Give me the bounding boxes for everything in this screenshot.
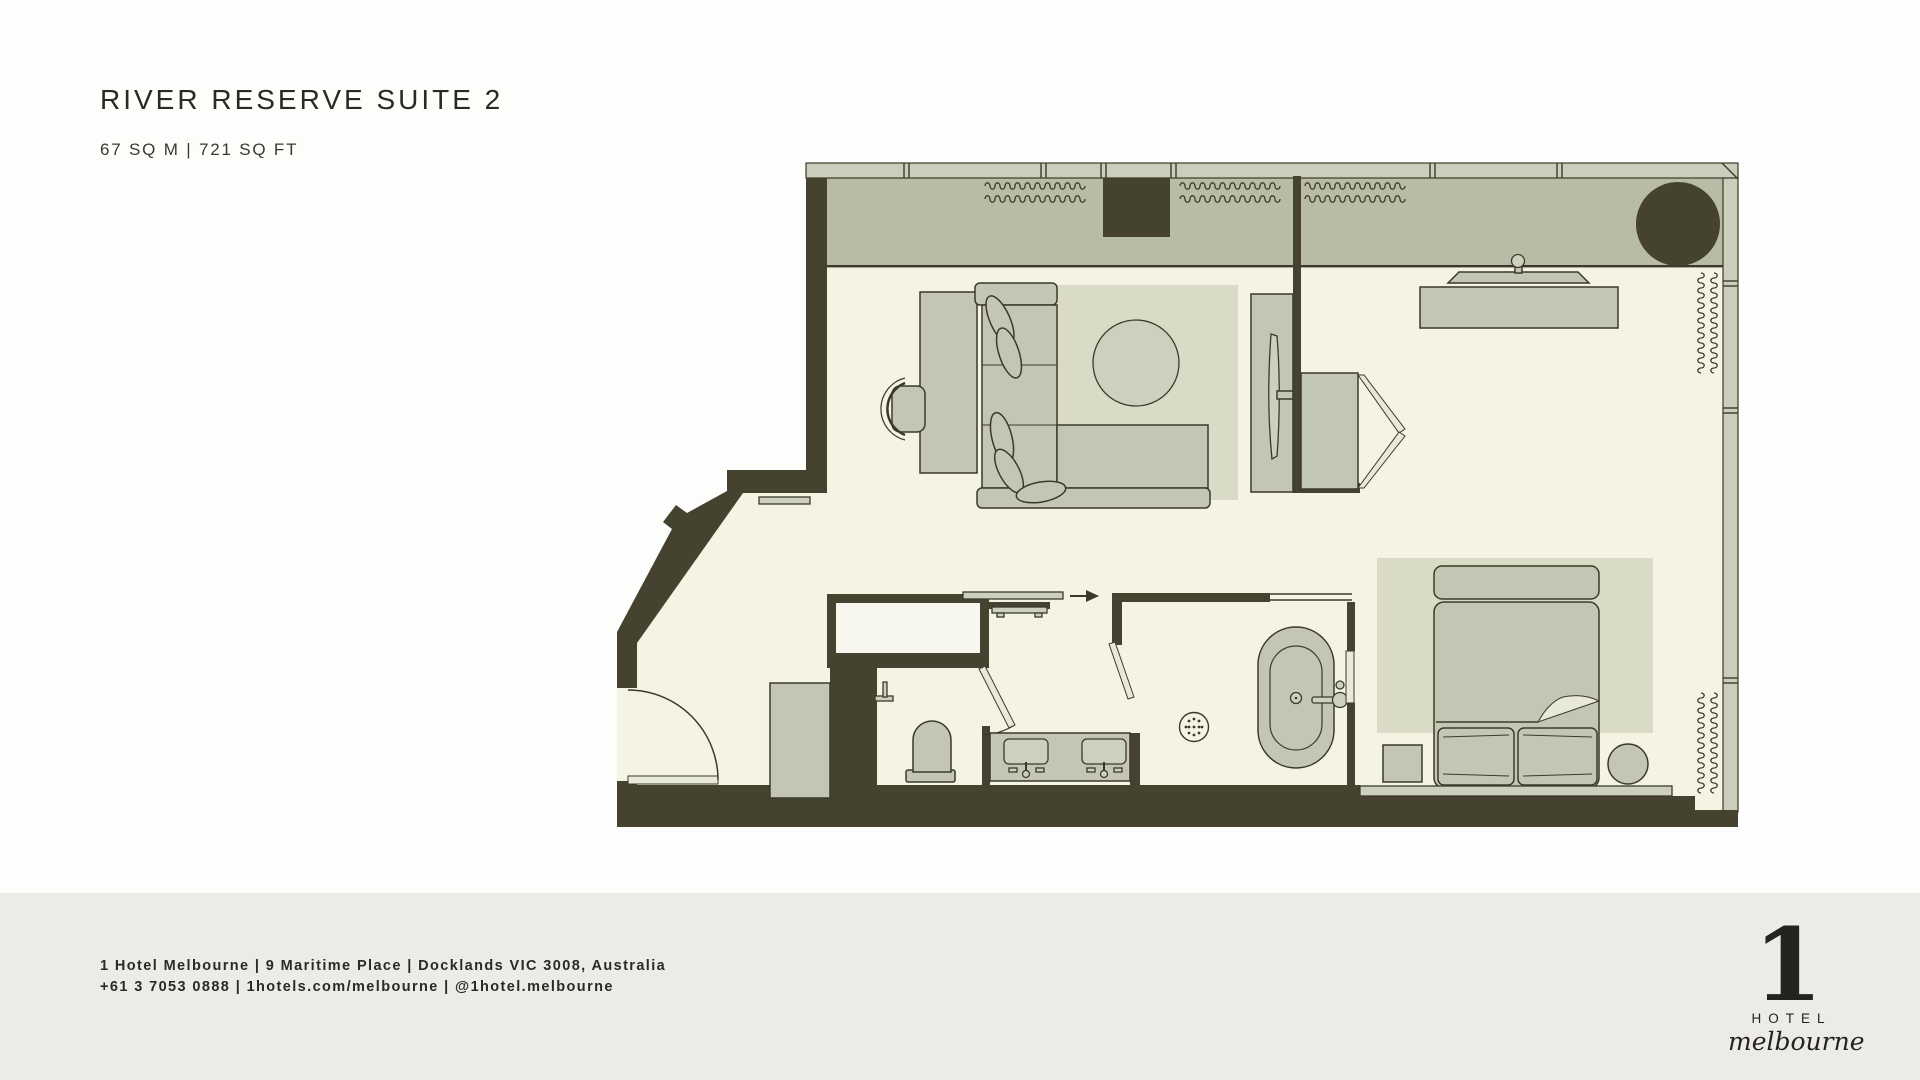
dresser — [1420, 287, 1618, 328]
sink — [1004, 739, 1048, 764]
headboard-ledge — [1360, 786, 1672, 796]
terrace-planter-square — [1103, 178, 1170, 237]
nightstand-round — [1608, 744, 1648, 784]
closet — [836, 603, 980, 653]
divider-wall — [1293, 176, 1301, 493]
sofa-seat-horizontal — [1057, 425, 1208, 488]
terrace-planter-circle — [1636, 182, 1720, 266]
bed-pillows — [1438, 728, 1597, 785]
entry-bench — [770, 683, 830, 798]
bathroom-door-leaf — [1346, 651, 1354, 703]
coffee-table — [1093, 320, 1179, 406]
vanity — [990, 733, 1130, 781]
sink — [1082, 739, 1126, 764]
bed-foot-bench — [1434, 566, 1599, 599]
sofa-seat-vertical — [982, 305, 1057, 488]
wardrobe — [1301, 373, 1358, 489]
entry-door-leaf — [628, 776, 718, 784]
console-shelf — [963, 592, 1063, 599]
terrace — [827, 178, 1723, 267]
floor-plan — [0, 0, 1920, 1080]
toilet-bowl — [913, 721, 951, 772]
wall-shelf — [759, 497, 810, 504]
nightstand-square — [1383, 745, 1422, 782]
sofa-chaise — [920, 292, 977, 473]
